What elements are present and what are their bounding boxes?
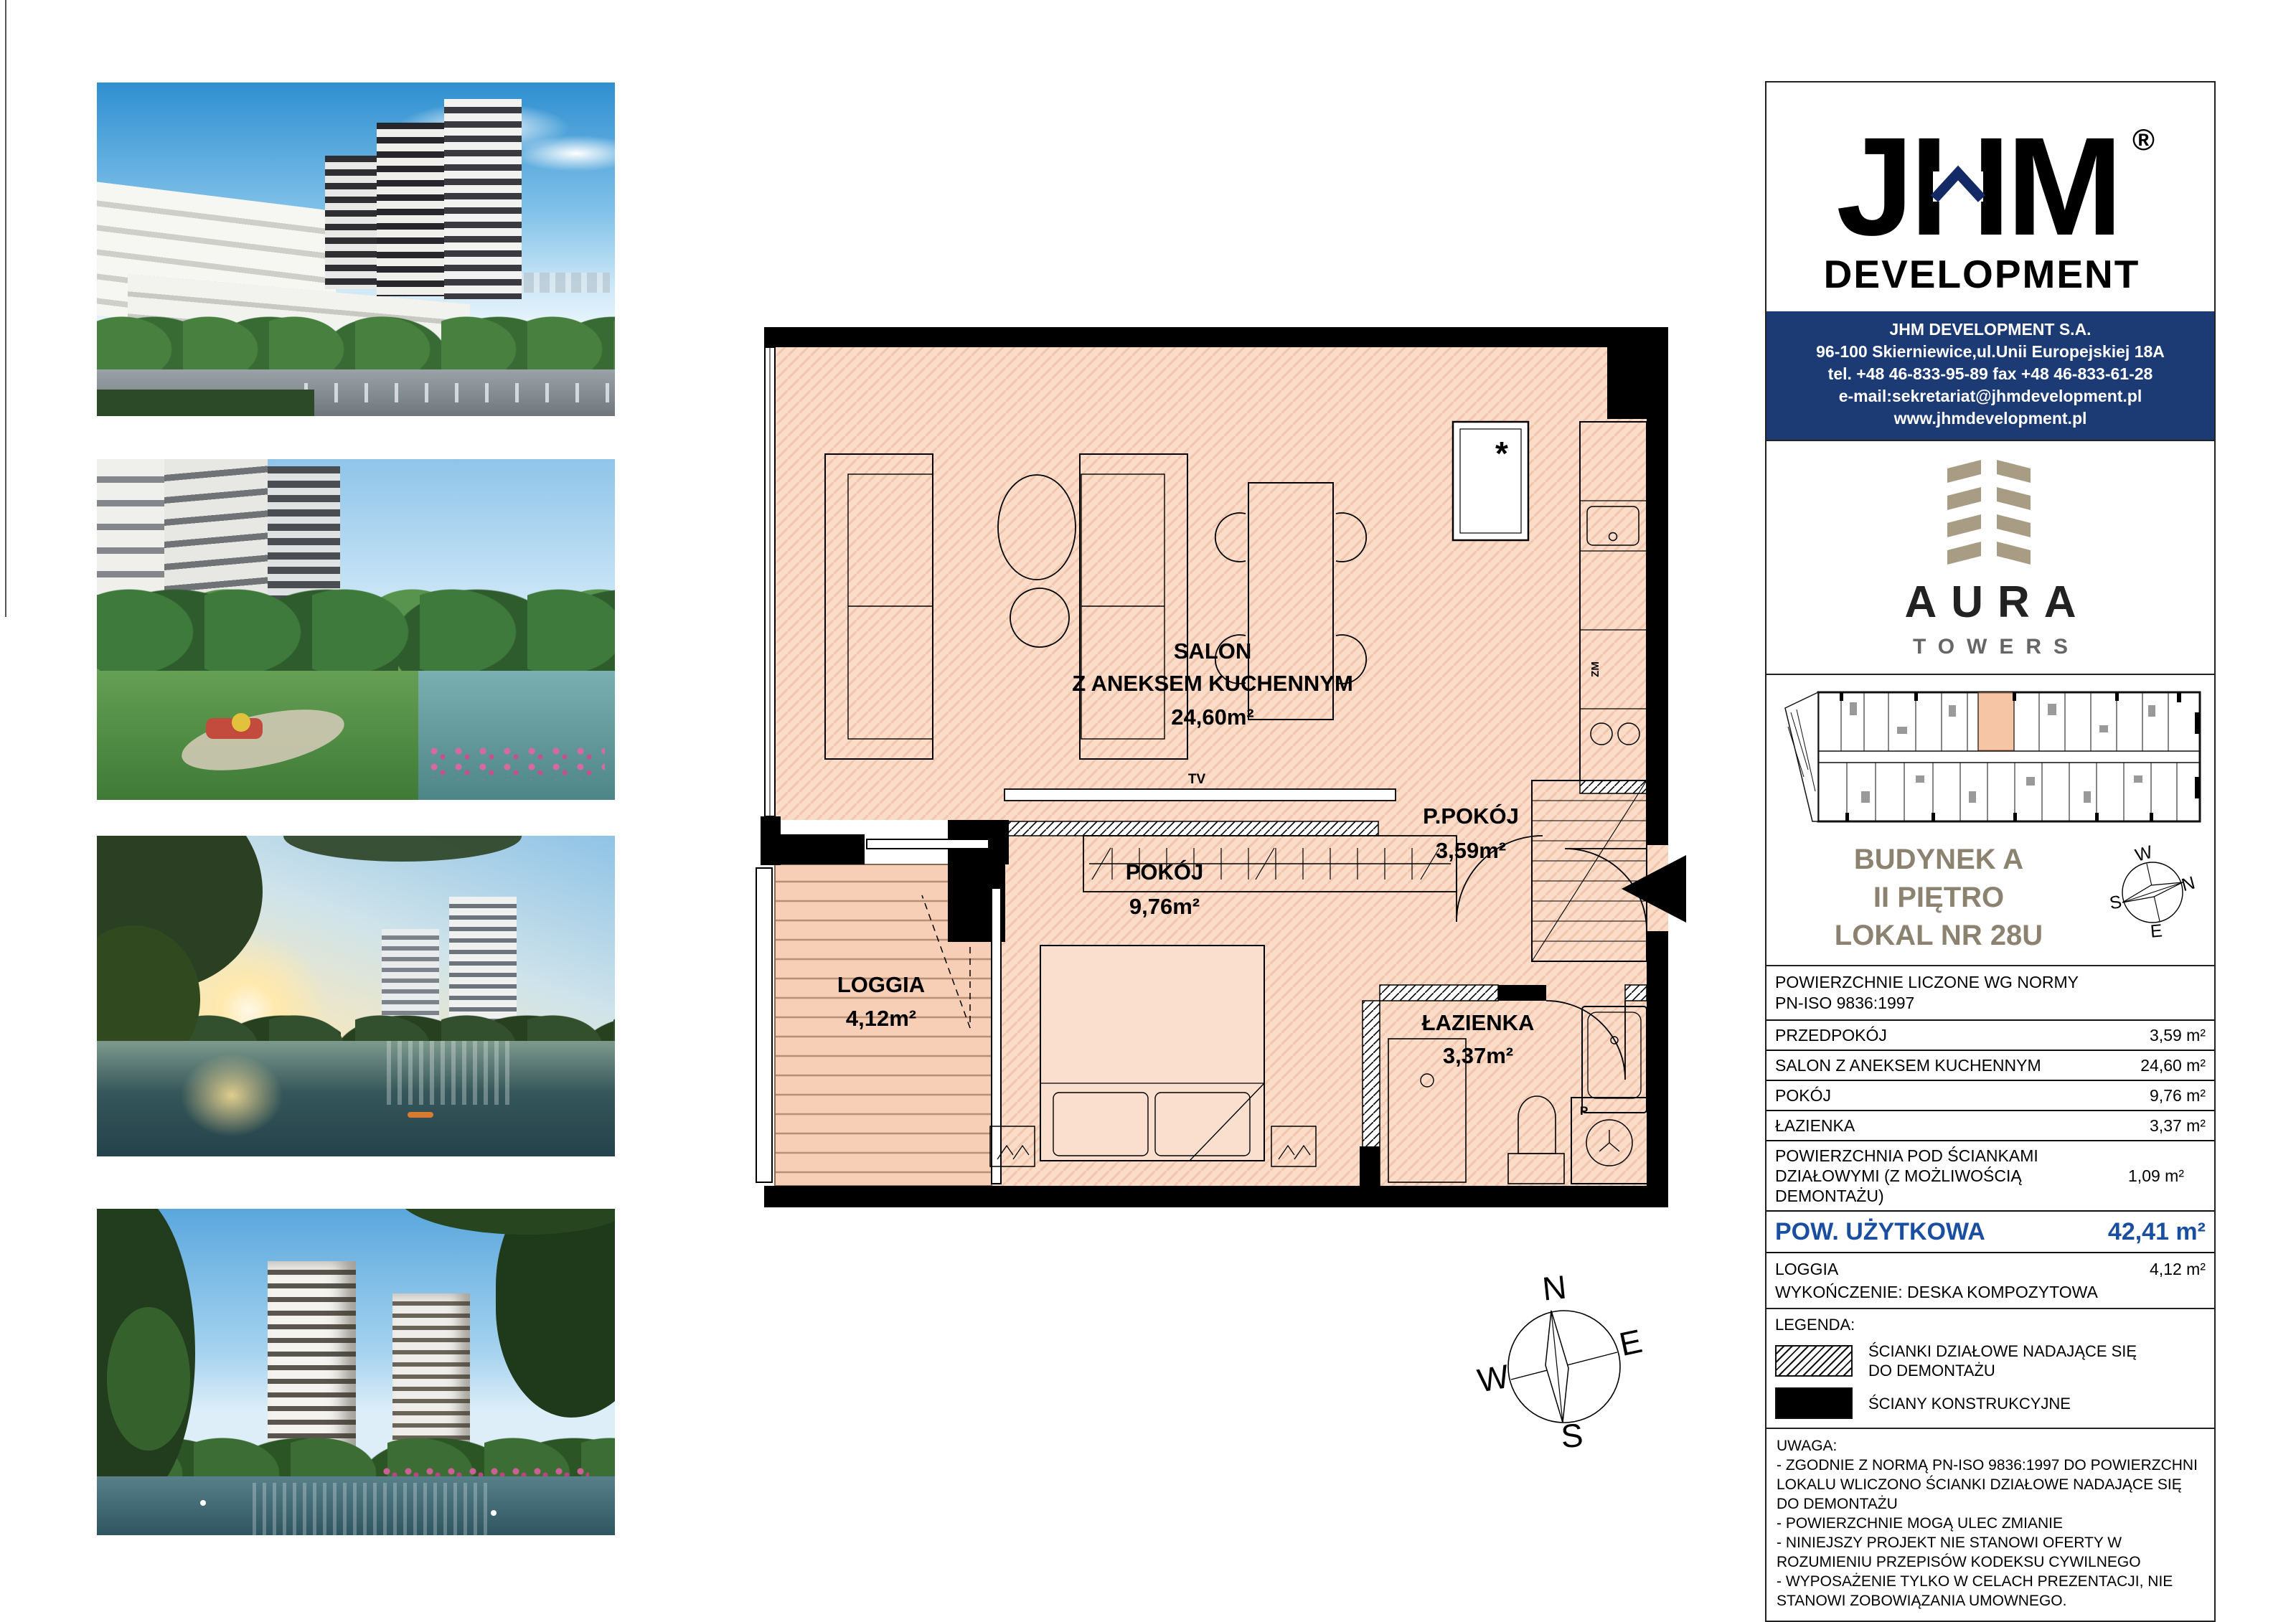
table-row: ŁAZIENKA 3,37 m² xyxy=(1766,1110,2214,1140)
reflections xyxy=(253,1483,491,1535)
notes-title: UWAGA: xyxy=(1777,1436,2204,1456)
photo-render-1 xyxy=(97,82,615,416)
compass-s: S xyxy=(1560,1416,1584,1453)
floor-plan: SALON Z ANEKSEM KUCHENNYM 24,60m² TV P.P… xyxy=(753,321,1700,1225)
photo-render-4 xyxy=(97,1209,615,1535)
unit-number: LOKAL NR 28U xyxy=(1788,917,2089,955)
row-value: 3,37 m² xyxy=(2112,1116,2206,1136)
loggia-area: 4,12m² xyxy=(846,1006,916,1031)
project-name: AURA xyxy=(1766,577,2214,628)
salon-area: 24,60m² xyxy=(1171,704,1253,730)
jhm-logo: JHM ® DEVELOPMENT xyxy=(1766,82,2214,311)
legend-partition-label: ŚCIANKI DZIAŁOWE NADAJĄCE SIĘ DO DEMONTA… xyxy=(1868,1342,2155,1380)
unit-building: BUDYNEK A xyxy=(1788,841,2089,879)
loggia-label: LOGGIA xyxy=(1775,1258,2112,1281)
tower-reflection xyxy=(387,1041,511,1105)
notes: UWAGA: - ZGODNIE Z NORMĄ PN-ISO 9836:199… xyxy=(1765,1428,2216,1622)
mini-compass-s: S xyxy=(2108,892,2123,913)
tower xyxy=(444,99,522,299)
pokoj-label: POKÓJ xyxy=(1126,859,1204,885)
legend-partition-swatch-icon xyxy=(1775,1345,1853,1377)
table-header-line2: PN-ISO 9836:1997 xyxy=(1775,993,2206,1014)
project-logo-card: AURA TOWERS xyxy=(1765,440,2216,675)
contact-line-website[interactable]: www.jhmdevelopment.pl xyxy=(1771,407,2210,430)
salon-label2: Z ANEKSEM KUCHENNYM xyxy=(1072,671,1353,696)
tower xyxy=(449,897,517,1034)
sun-reflection xyxy=(180,1054,283,1137)
compass-w: W xyxy=(1474,1357,1512,1400)
compass-n: N xyxy=(1540,1268,1568,1307)
parking-lines xyxy=(304,383,615,403)
pokoj-area: 9,76m² xyxy=(1129,894,1200,919)
row-value: 24,60 m² xyxy=(2112,1055,2206,1075)
note-item: - NINIEJSZY PROJEKT NIE STANOWI OFERTY W… xyxy=(1777,1533,2204,1572)
lazienka-area: 3,37m² xyxy=(1443,1043,1513,1068)
row-label: PRZEDPOKÓJ xyxy=(1775,1025,2112,1045)
row-label: ŁAZIENKA xyxy=(1775,1116,2112,1136)
table-loggia-row: LOGGIA 4,12 m² WYKOŃCZENIE: DESKA KOMPOZ… xyxy=(1766,1252,2214,1308)
cloud xyxy=(512,136,615,171)
developer-card: JHM ® DEVELOPMENT JHM DEVELOPMENT S.A. 9… xyxy=(1765,81,2216,441)
registered-mark: ® xyxy=(2132,123,2155,156)
table-row: POWIERZCHNIA POD ŚCIANKAMI DZIAŁOWYMI (Z… xyxy=(1766,1140,2214,1210)
legend-title: LEGENDA: xyxy=(1775,1315,2206,1334)
developer-contact: JHM DEVELOPMENT S.A. 96-100 Skierniewice… xyxy=(1766,311,2214,440)
unit-floor: II PIĘTRO xyxy=(1788,879,2089,917)
hedge xyxy=(97,390,314,416)
contact-line[interactable]: e-mail:sekretariat@jhmdevelopment.pl xyxy=(1771,385,2210,407)
lake xyxy=(97,1041,615,1156)
contact-line: 96-100 Skierniewice,ul.Unii Europejskiej… xyxy=(1771,341,2210,363)
tv-wall xyxy=(1004,789,1396,801)
compass-rose: N E W S xyxy=(1471,1266,1657,1456)
loggia-label: LOGGIA xyxy=(837,972,925,997)
tree-band xyxy=(97,316,615,373)
photo-render-3 xyxy=(97,836,615,1156)
mini-compass-e: E xyxy=(2150,920,2163,938)
tower xyxy=(377,123,444,296)
playground-equipment xyxy=(232,713,250,732)
ppokoj-area: 3,59m² xyxy=(1436,838,1506,863)
table-row: PRZEDPOKÓJ 3,59 m² xyxy=(1766,1019,2214,1050)
note-item: - POWIERZCHNIE MOGĄ ULEC ZMIANIE xyxy=(1777,1514,2204,1533)
tree-band xyxy=(97,589,615,671)
total-label: POW. UŻYTKOWA xyxy=(1775,1217,2091,1246)
table-header: POWIERZCHNIE LICZONE WG NORMY PN-ISO 983… xyxy=(1766,966,2214,1019)
aura-towers-icon xyxy=(1937,454,2044,569)
salon-label: SALON xyxy=(1174,638,1252,664)
ppokoj-label: P.POKÓJ xyxy=(1423,803,1519,829)
tower xyxy=(268,1261,356,1451)
photo-render-2 xyxy=(97,459,615,800)
total-value: 42,41 m² xyxy=(2091,1217,2206,1246)
project-name-sub: TOWERS xyxy=(1766,635,2214,659)
note-item: - WYPOSAŻENIE TYLKO W CELACH PREZENTACJI… xyxy=(1777,1572,2204,1611)
legend-structural-swatch-icon xyxy=(1775,1387,1853,1419)
area-table: POWIERZCHNIE LICZONE WG NORMY PN-ISO 983… xyxy=(1765,965,2216,1309)
jhm-development-text: DEVELOPMENT xyxy=(1824,252,2140,296)
row-label: POKÓJ xyxy=(1775,1085,2112,1105)
kayak xyxy=(408,1112,433,1118)
swan xyxy=(491,1510,497,1516)
flower-bed xyxy=(428,745,604,780)
legend: LEGENDA: ŚCIANKI DZIAŁOWE NADAJĄCE SIĘ D… xyxy=(1765,1308,2216,1429)
lazienka-label: ŁAZIENKA xyxy=(1422,1010,1535,1035)
compass-e: E xyxy=(1616,1322,1645,1363)
mini-compass-n: N xyxy=(2180,872,2198,895)
loggia-value: 4,12 m² xyxy=(2112,1258,2206,1281)
row-label: POWIERZCHNIA POD ŚCIANKAMI DZIAŁOWYMI (Z… xyxy=(1775,1146,2091,1206)
contact-line: JHM DEVELOPMENT S.A. xyxy=(1771,319,2210,341)
row-value: 9,76 m² xyxy=(2112,1085,2206,1105)
washer-label: P xyxy=(1580,1104,1588,1118)
highlighted-unit[interactable] xyxy=(1978,693,2014,750)
fridge-star-icon: * xyxy=(1495,435,1508,472)
page-edge-line xyxy=(5,0,6,617)
dishwasher-label: ZM xyxy=(1589,661,1601,677)
tower xyxy=(325,156,377,289)
table-row: POKÓJ 9,76 m² xyxy=(1766,1080,2214,1110)
table-row: SALON Z ANEKSEM KUCHENNYM 24,60 m² xyxy=(1766,1050,2214,1080)
floor-overview-plan xyxy=(1775,684,2206,831)
tree-frame-left xyxy=(107,1307,190,1451)
note-item: - ZGODNIE Z NORMĄ PN-ISO 9836:1997 DO PO… xyxy=(1777,1456,2204,1514)
row-label: SALON Z ANEKSEM KUCHENNYM xyxy=(1775,1055,2112,1075)
unit-locator-card: BUDYNEK A II PIĘTRO LOKAL NR 28U W N S E xyxy=(1765,674,2216,966)
loggia-note: WYKOŃCZENIE: DESKA KOMPOZYTOWA xyxy=(1775,1281,2206,1303)
tv-label: TV xyxy=(1188,772,1206,787)
table-total-row: POW. UŻYTKOWA 42,41 m² xyxy=(1766,1210,2214,1252)
table-header-line1: POWIERZCHNIE LICZONE WG NORMY xyxy=(1775,972,2206,993)
mini-compass-rose: W N S E xyxy=(2108,845,2201,942)
row-value: 1,09 m² xyxy=(2091,1166,2184,1186)
tower xyxy=(392,1293,470,1450)
row-value: 3,59 m² xyxy=(2112,1025,2206,1045)
contact-line: tel. +48 46-833-95-89 fax +48 46-833-61-… xyxy=(1771,363,2210,385)
legend-structural-label: ŚCIANY KONSTRUKCYJNE xyxy=(1868,1394,2071,1413)
